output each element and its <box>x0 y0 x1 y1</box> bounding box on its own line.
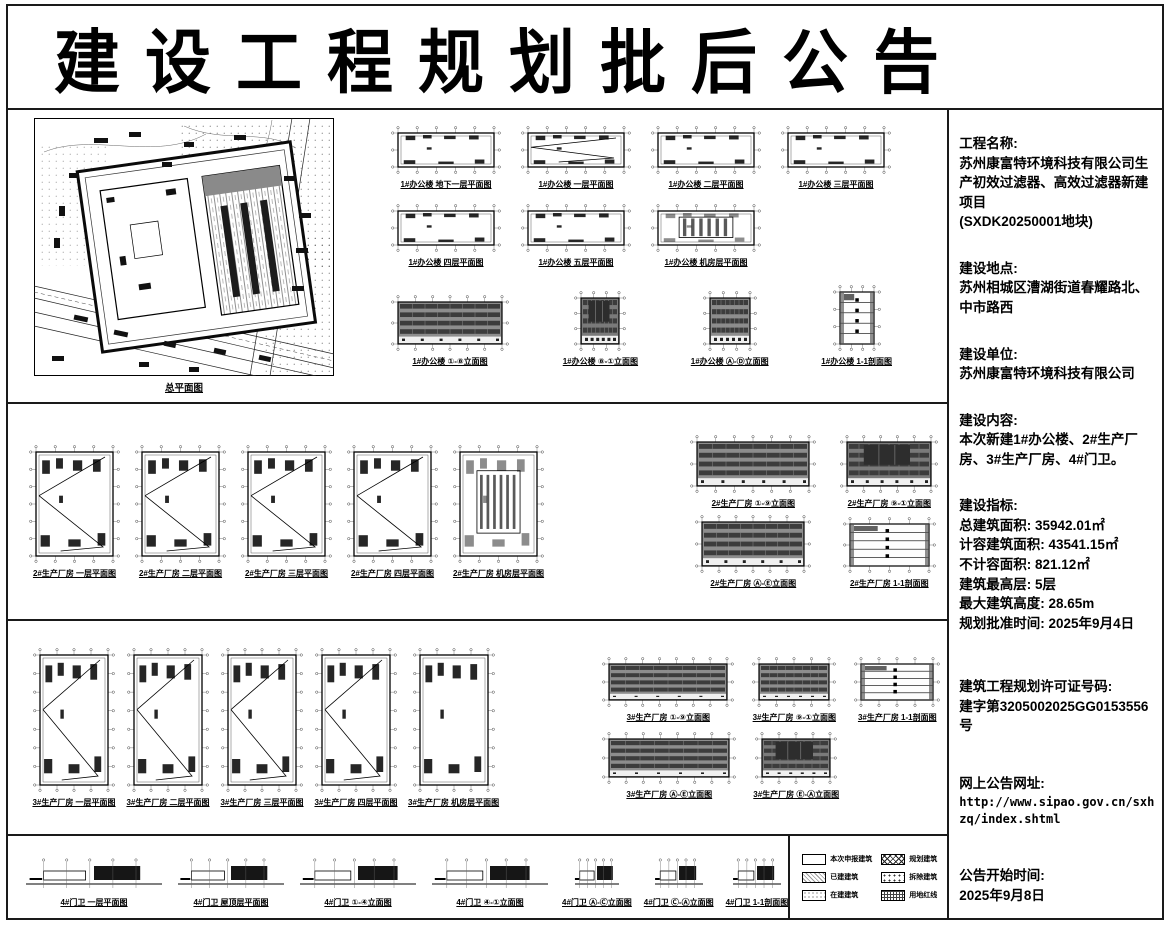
drawing-cell: 3#生产厂房 ⑨-①立面图 <box>751 656 837 723</box>
info-block-announcement-url: 网上公告网址: http://www.sipao.gov.cn/sxhzq/in… <box>959 774 1157 828</box>
drawing-caption: 1#办公楼 地下一层平面图 <box>400 179 491 190</box>
legend-label: 已建建筑 <box>830 872 858 882</box>
info-block-project-name: 工程名称: 苏州康富特环境科技有限公司生产初效过滤器、高效过滤器新建项目 (SX… <box>959 134 1157 232</box>
drawing-caption: 3#生产厂房 ⑨-①立面图 <box>753 712 836 723</box>
elevation-drawing <box>653 851 705 893</box>
info-block-content: 建设内容: 本次新建1#办公楼、2#生产厂房、3#生产厂房、4#门卫。 <box>959 411 1157 470</box>
drawing-cell: 2#生产厂房 一层平面图 <box>28 444 121 579</box>
info-block-permit-number: 建筑工程规划许可证号码: 建字第3205002025GG0153556号 <box>959 677 1157 736</box>
drawing-cell: 3#生产厂房 一层平面图 <box>32 647 116 808</box>
drawing-caption: 3#生产厂房 ①-⑨立面图 <box>627 712 710 723</box>
drawing-caption: 4#门卫 1-1剖面图 <box>726 897 789 908</box>
floor-plan-drawing <box>28 444 121 564</box>
band-factory2: 2#生产厂房 一层平面图 2#生产厂房 二层平面图 2#生产厂房 三层平面图 2… <box>8 404 947 621</box>
floor-plan-drawing <box>134 444 227 564</box>
legend-item: 已建建筑 <box>802 872 872 883</box>
office-plan-row2: 1#办公楼 四层平面图 1#办公楼 五层平面图 1#办公楼 机房层平面图 <box>390 203 892 268</box>
main-area: 总平面图 1#办公楼 地下一层平面图 1#办公楼 一层平面图 <box>8 110 1162 918</box>
title-band: 建设工程规划批后公告 <box>8 6 1162 110</box>
elevation-drawing <box>754 731 838 785</box>
drawing-cell: 3#生产厂房 三层平面图 <box>220 647 304 808</box>
drawing-caption: 1#办公楼 四层平面图 <box>408 257 483 268</box>
drawing-caption: 1#办公楼 机房层平面图 <box>664 257 747 268</box>
drawing-caption: 1#办公楼 1-1剖面图 <box>821 356 892 367</box>
drawing-caption: 2#生产厂房 二层平面图 <box>139 568 222 579</box>
legend-swatch-dots <box>802 890 826 901</box>
site-plan-caption: 总平面图 <box>165 380 203 394</box>
drawing-caption: 2#生产厂房 四层平面图 <box>351 568 434 579</box>
floor-plan-drawing <box>780 125 892 175</box>
drawing-caption: 3#生产厂房 四层平面图 <box>314 797 397 808</box>
elevation-drawing <box>702 290 758 352</box>
drawing-caption: 1#办公楼 二层平面图 <box>668 179 743 190</box>
info-value: 本次新建1#办公楼、2#生产厂房、3#生产厂房、4#门卫。 <box>959 430 1157 469</box>
elevation-drawing <box>430 849 550 893</box>
info-block-location: 建设地点: 苏州相城区漕湖街道春耀路北、中市路西 <box>959 259 1157 318</box>
drawing-caption: 2#生产厂房 ⑨-①立面图 <box>848 498 931 509</box>
drawing-caption: 1#办公楼 五层平面图 <box>538 257 613 268</box>
drawing-cell: 1#办公楼 二层平面图 <box>650 125 762 190</box>
drawing-cell: 1#办公楼 四层平面图 <box>390 203 502 268</box>
drawing-cell: 1#办公楼 1-1剖面图 <box>821 284 892 367</box>
drawing-cell: 4#门卫 屋顶层平面图 <box>176 847 286 908</box>
site-plan-cell: 总平面图 <box>34 118 334 394</box>
factory2-plans: 2#生产厂房 一层平面图 2#生产厂房 二层平面图 2#生产厂房 三层平面图 2… <box>28 444 545 579</box>
info-value: 总建筑面积: 35942.01㎡ 计容建筑面积: 43541.15㎡ 不计容面积… <box>959 516 1157 633</box>
drawing-cell: 2#生产厂房 二层平面图 <box>134 444 227 579</box>
drawing-cell: 3#生产厂房 Ⓔ-Ⓐ立面图 <box>753 731 839 800</box>
drawing-caption: 1#办公楼 Ⓐ-Ⓓ立面图 <box>691 356 769 367</box>
drawing-caption: 4#门卫 Ⓐ-Ⓒ立面图 <box>562 897 632 908</box>
drawing-cell: 3#生产厂房 1-1剖面图 <box>853 656 941 723</box>
drawing-cell: 1#办公楼 Ⓐ-Ⓓ立面图 <box>691 290 769 367</box>
info-value: 建字第3205002025GG0153556号 <box>959 697 1157 736</box>
drawing-cell: 2#生产厂房 机房层平面图 <box>452 444 545 579</box>
factory3-elevations: 3#生产厂房 ①-⑨立面图 3#生产厂房 ⑨-①立面图 3#生产厂房 1-1剖面… <box>601 656 941 800</box>
elevation-drawing <box>839 434 939 494</box>
band-guard: 4#门卫 一层平面图 4#门卫 屋顶层平面图 4#门卫 ①-④立面图 4#门卫 … <box>8 836 947 918</box>
project-info-panel: 工程名称: 苏州康富特环境科技有限公司生产初效过滤器、高效过滤器新建项目 (SX… <box>949 110 1162 918</box>
drawing-cell: 1#办公楼 一层平面图 <box>520 125 632 190</box>
info-value: 苏州康富特环境科技有限公司生产初效过滤器、高效过滤器新建项目 (SXDK2025… <box>959 154 1157 232</box>
drawing-caption: 4#门卫 一层平面图 <box>60 897 127 908</box>
drawing-cell: 3#生产厂房 二层平面图 <box>126 647 210 808</box>
legend-label: 在建建筑 <box>830 890 858 900</box>
floor-plan-drawing <box>24 847 164 893</box>
drawing-cell: 1#办公楼 地下一层平面图 <box>390 125 502 190</box>
drawing-cell: 1#办公楼 三层平面图 <box>780 125 892 190</box>
drawing-caption: 2#生产厂房 一层平面图 <box>33 568 116 579</box>
floor-plan-drawing <box>520 203 632 253</box>
drawing-cell: 4#门卫 ④-①立面图 <box>430 849 550 908</box>
drawing-cell: 2#生产厂房 四层平面图 <box>346 444 439 579</box>
info-label: 工程名称: <box>959 134 1157 154</box>
legend-swatch-blank <box>802 854 826 865</box>
info-label: 建筑工程规划许可证号码: <box>959 677 1157 697</box>
floor-plan-drawing <box>220 647 304 793</box>
drawing-cell: 2#生产厂房 ①-⑨立面图 <box>689 434 817 509</box>
drawing-cell: 2#生产厂房 ⑨-①立面图 <box>839 434 939 509</box>
office-elevation-row: 1#办公楼 ①-⑧立面图 1#办公楼 ⑧-①立面图 1#办公楼 Ⓐ-Ⓓ立面图 <box>390 284 892 367</box>
info-block-start-date: 公告开始时间: 2025年9月8日 <box>959 866 1157 905</box>
info-label: 建设指标: <box>959 496 1157 516</box>
announcement-page: 建设工程规划批后公告 <box>6 4 1164 920</box>
elevation-drawing <box>689 434 817 494</box>
drawing-cell: 3#生产厂房 Ⓐ-Ⓔ立面图 <box>601 731 737 800</box>
drawing-caption: 4#门卫 ④-①立面图 <box>456 897 523 908</box>
section-drawing <box>853 656 941 708</box>
drawing-caption: 3#生产厂房 Ⓐ-Ⓔ立面图 <box>626 789 712 800</box>
drawing-caption: 2#生产厂房 Ⓐ-Ⓔ立面图 <box>710 578 796 589</box>
drawing-caption: 2#生产厂房 ①-⑨立面图 <box>712 498 795 509</box>
drawing-cell: 4#门卫 ①-④立面图 <box>298 849 418 908</box>
drawing-caption: 4#门卫 Ⓒ-Ⓐ立面图 <box>644 897 714 908</box>
legend-label: 用地红线 <box>909 890 937 900</box>
floor-plan-drawing <box>650 203 762 253</box>
factory3-elev-row1: 3#生产厂房 ①-⑨立面图 3#生产厂房 ⑨-①立面图 3#生产厂房 1-1剖面… <box>601 656 941 723</box>
factory3-plans: 3#生产厂房 一层平面图 3#生产厂房 二层平面图 3#生产厂房 三层平面图 3… <box>32 647 499 808</box>
info-label: 建设地点: <box>959 259 1157 279</box>
drawing-caption: 3#生产厂房 二层平面图 <box>126 797 209 808</box>
elevation-drawing <box>601 656 735 708</box>
drawing-cell: 2#生产厂房 Ⓐ-Ⓔ立面图 <box>694 514 812 589</box>
band-office: 总平面图 1#办公楼 地下一层平面图 1#办公楼 一层平面图 <box>8 110 947 404</box>
elevation-drawing <box>601 731 737 785</box>
drawing-cell: 3#生产厂房 机房层平面图 <box>408 647 499 808</box>
elevation-drawing <box>573 290 627 352</box>
office-plan-row1: 1#办公楼 地下一层平面图 1#办公楼 一层平面图 1#办公楼 二层平面图 <box>390 125 892 190</box>
elevation-drawing <box>751 656 837 708</box>
drawing-cell: 4#门卫 1-1剖面图 <box>726 851 789 908</box>
legend-item: 用地红线 <box>881 890 937 901</box>
elevation-drawing <box>573 851 621 893</box>
drawing-cell: 3#生产厂房 四层平面图 <box>314 647 398 808</box>
drawings-area: 总平面图 1#办公楼 地下一层平面图 1#办公楼 一层平面图 <box>8 110 949 918</box>
site-plan-drawing <box>34 118 334 376</box>
floor-plan-drawing <box>452 444 545 564</box>
drawing-caption: 4#门卫 屋顶层平面图 <box>193 897 268 908</box>
info-label: 建设单位: <box>959 345 1157 365</box>
drawing-caption: 2#生产厂房 1-1剖面图 <box>850 578 929 589</box>
elevation-drawing <box>694 514 812 574</box>
legend-swatch-dense-dots <box>881 872 905 883</box>
legend: 本次申报建筑 已建建筑 在建建筑 规划建筑 <box>802 854 937 901</box>
info-value: 2025年9月8日 <box>959 886 1157 906</box>
drawing-caption: 1#办公楼 ⑧-①立面图 <box>563 356 638 367</box>
legend-label: 规划建筑 <box>909 854 937 864</box>
floor-plan-drawing <box>412 647 496 793</box>
info-block-indicators: 建设指标: 总建筑面积: 35942.01㎡ 计容建筑面积: 43541.15㎡… <box>959 496 1157 633</box>
floor-plan-drawing <box>314 647 398 793</box>
drawing-caption: 2#生产厂房 机房层平面图 <box>453 568 544 579</box>
drawing-caption: 3#生产厂房 一层平面图 <box>32 797 115 808</box>
legend-label: 拆除建筑 <box>909 872 937 882</box>
drawing-caption: 2#生产厂房 三层平面图 <box>245 568 328 579</box>
legend-item: 在建建筑 <box>802 890 872 901</box>
drawing-caption: 3#生产厂房 Ⓔ-Ⓐ立面图 <box>753 789 839 800</box>
floor-plan-drawing <box>176 847 286 893</box>
drawing-cell: 1#办公楼 五层平面图 <box>520 203 632 268</box>
drawing-cell: 1#办公楼 ①-⑧立面图 <box>390 294 510 367</box>
elevation-drawing <box>298 849 418 893</box>
elevation-drawing <box>390 294 510 352</box>
info-value: 苏州康富特环境科技有限公司 <box>959 364 1157 384</box>
floor-plan-drawing <box>390 125 502 175</box>
drawing-cell: 4#门卫 Ⓒ-Ⓐ立面图 <box>644 851 714 908</box>
floor-plan-drawing <box>520 125 632 175</box>
office-drawings: 1#办公楼 地下一层平面图 1#办公楼 一层平面图 1#办公楼 二层平面图 <box>390 112 892 367</box>
legend-item: 规划建筑 <box>881 854 937 865</box>
floor-plan-drawing <box>126 647 210 793</box>
drawing-cell: 2#生产厂房 1-1剖面图 <box>842 516 937 589</box>
drawing-caption: 1#办公楼 ①-⑧立面图 <box>412 356 487 367</box>
drawing-caption: 1#办公楼 三层平面图 <box>798 179 873 190</box>
floor-plan-drawing <box>390 203 502 253</box>
floor-plan-drawing <box>650 125 762 175</box>
announcement-url: http://www.sipao.gov.cn/sxhzq/index.shtm… <box>959 794 1157 829</box>
factory3-elev-row2: 3#生产厂房 Ⓐ-Ⓔ立面图 3#生产厂房 Ⓔ-Ⓐ立面图 <box>601 731 941 800</box>
drawing-caption: 4#门卫 ①-④立面图 <box>324 897 391 908</box>
drawing-cell: 4#门卫 Ⓐ-Ⓒ立面图 <box>562 851 632 908</box>
section-drawing <box>832 284 882 352</box>
drawing-cell: 2#生产厂房 三层平面图 <box>240 444 333 579</box>
band-factory3: 3#生产厂房 一层平面图 3#生产厂房 二层平面图 3#生产厂房 三层平面图 3… <box>8 621 947 836</box>
legend-item: 拆除建筑 <box>881 872 937 883</box>
section-drawing <box>842 516 937 574</box>
info-block-builder: 建设单位: 苏州康富特环境科技有限公司 <box>959 345 1157 384</box>
info-value: 苏州相城区漕湖街道春耀路北、中市路西 <box>959 278 1157 317</box>
floor-plan-drawing <box>240 444 333 564</box>
drawing-cell: 3#生产厂房 ①-⑨立面图 <box>601 656 735 723</box>
legend-item: 本次申报建筑 <box>802 854 872 865</box>
drawing-caption: 3#生产厂房 三层平面图 <box>220 797 303 808</box>
floor-plan-drawing <box>32 647 116 793</box>
floor-plan-drawing <box>346 444 439 564</box>
info-label: 建设内容: <box>959 411 1157 431</box>
legend-swatch-grid <box>881 890 905 901</box>
drawing-cell: 1#办公楼 机房层平面图 <box>650 203 762 268</box>
legend-divider <box>788 836 790 918</box>
legend-label: 本次申报建筑 <box>830 854 872 864</box>
info-label: 公告开始时间: <box>959 866 1157 886</box>
legend-swatch-hatch <box>802 872 826 883</box>
drawing-cell: 1#办公楼 ⑧-①立面图 <box>563 290 638 367</box>
drawing-caption: 1#办公楼 一层平面图 <box>538 179 613 190</box>
drawing-caption: 3#生产厂房 机房层平面图 <box>408 797 499 808</box>
page-title: 建设工程规划批后公告 <box>54 7 964 108</box>
guard-drawings: 4#门卫 一层平面图 4#门卫 屋顶层平面图 4#门卫 ①-④立面图 4#门卫 … <box>24 847 788 908</box>
factory2-elevations: 2#生产厂房 ①-⑨立面图 2#生产厂房 ⑨-①立面图 2#生产厂房 Ⓐ-Ⓔ立面… <box>689 434 939 589</box>
section-drawing <box>731 851 783 893</box>
drawing-cell: 4#门卫 一层平面图 <box>24 847 164 908</box>
drawing-caption: 3#生产厂房 1-1剖面图 <box>858 712 937 723</box>
info-label: 网上公告网址: <box>959 774 1157 794</box>
legend-swatch-crosshatch <box>881 854 905 865</box>
